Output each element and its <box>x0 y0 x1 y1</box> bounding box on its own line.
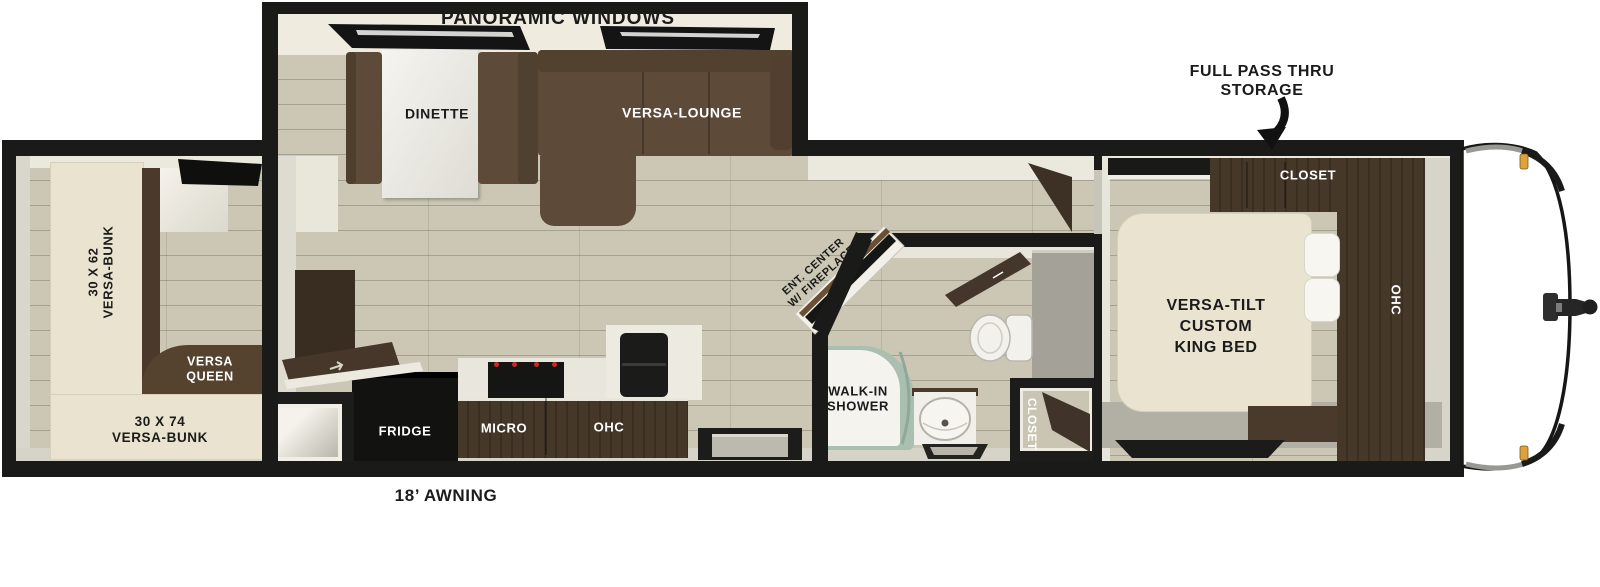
pass-thru-arrow-icon <box>1257 98 1286 150</box>
stove-knob-1 <box>494 362 499 367</box>
pass-thru-storage-line2: STORAGE <box>1190 82 1335 101</box>
king-bed-label: VERSA-TILT CUSTOM KING BED <box>1166 296 1265 358</box>
stove-knob-3 <box>534 362 539 367</box>
kitchen-ohc-label: OHC <box>594 419 625 434</box>
bath-closet-label: CLOSET <box>1025 398 1039 450</box>
bath-sink-icon <box>920 398 970 440</box>
bath-mat <box>922 444 988 459</box>
panoramic-windows-label: PANORAMIC WINDOWS <box>441 8 675 30</box>
rv-floorplan: PANORAMIC WINDOWS FULL PASS THRU STORAGE… <box>0 0 1600 587</box>
shower-line2: SHOWER <box>827 399 889 414</box>
bottom-bunk-line2: VERSA-BUNK <box>112 430 208 446</box>
marker-light-top-icon <box>1520 154 1528 169</box>
bedroom-closet-label: CLOSET <box>1280 167 1336 182</box>
king-bed-line3: KING BED <box>1166 337 1265 358</box>
shower-line1: WALK-IN <box>827 384 889 399</box>
king-bed-line1: VERSA-TILT <box>1166 296 1265 317</box>
left-bunk-label: 30 X 62 VERSA-BUNK <box>86 226 117 319</box>
shower-label: WALK-IN SHOWER <box>827 384 889 415</box>
bottom-bunk-line1: 30 X 74 <box>112 414 208 430</box>
bath-closet-shelf <box>1042 392 1090 452</box>
left-bunk-line1: 30 X 62 <box>86 226 101 319</box>
pass-thru-storage-line1: FULL PASS THRU <box>1190 63 1335 82</box>
dinette-label: DINETTE <box>405 106 469 123</box>
marker-light-bottom-icon <box>1520 446 1528 460</box>
fridge-label: FRIDGE <box>379 423 432 438</box>
versa-queen-line1: VERSA <box>186 354 233 369</box>
micro-label: MICRO <box>481 420 527 435</box>
bedroom-ohc-label: OHC <box>1388 285 1403 316</box>
left-bunk-line2: VERSA-BUNK <box>101 226 116 319</box>
shower-glass-icon <box>900 352 909 444</box>
stove-knob-2 <box>512 362 517 367</box>
versa-queen-line2: QUEEN <box>186 369 233 384</box>
bunk-tv-icon <box>178 159 262 186</box>
corner-cabinet <box>1028 163 1072 232</box>
bath-counter <box>945 252 1031 307</box>
toilet-icon <box>970 315 1032 361</box>
versa-lounge-label: VERSA-LOUNGE <box>622 105 742 122</box>
versa-queen-label: VERSA QUEEN <box>186 354 233 384</box>
awning-label: 18’ AWNING <box>395 486 498 506</box>
bedroom-bottom-window <box>1115 440 1285 458</box>
pass-thru-storage-label: FULL PASS THRU STORAGE <box>1190 63 1335 101</box>
bottom-bunk-label: 30 X 74 VERSA-BUNK <box>112 414 208 446</box>
stove-knob-4 <box>552 362 557 367</box>
king-bed-line2: CUSTOM <box>1166 317 1265 338</box>
